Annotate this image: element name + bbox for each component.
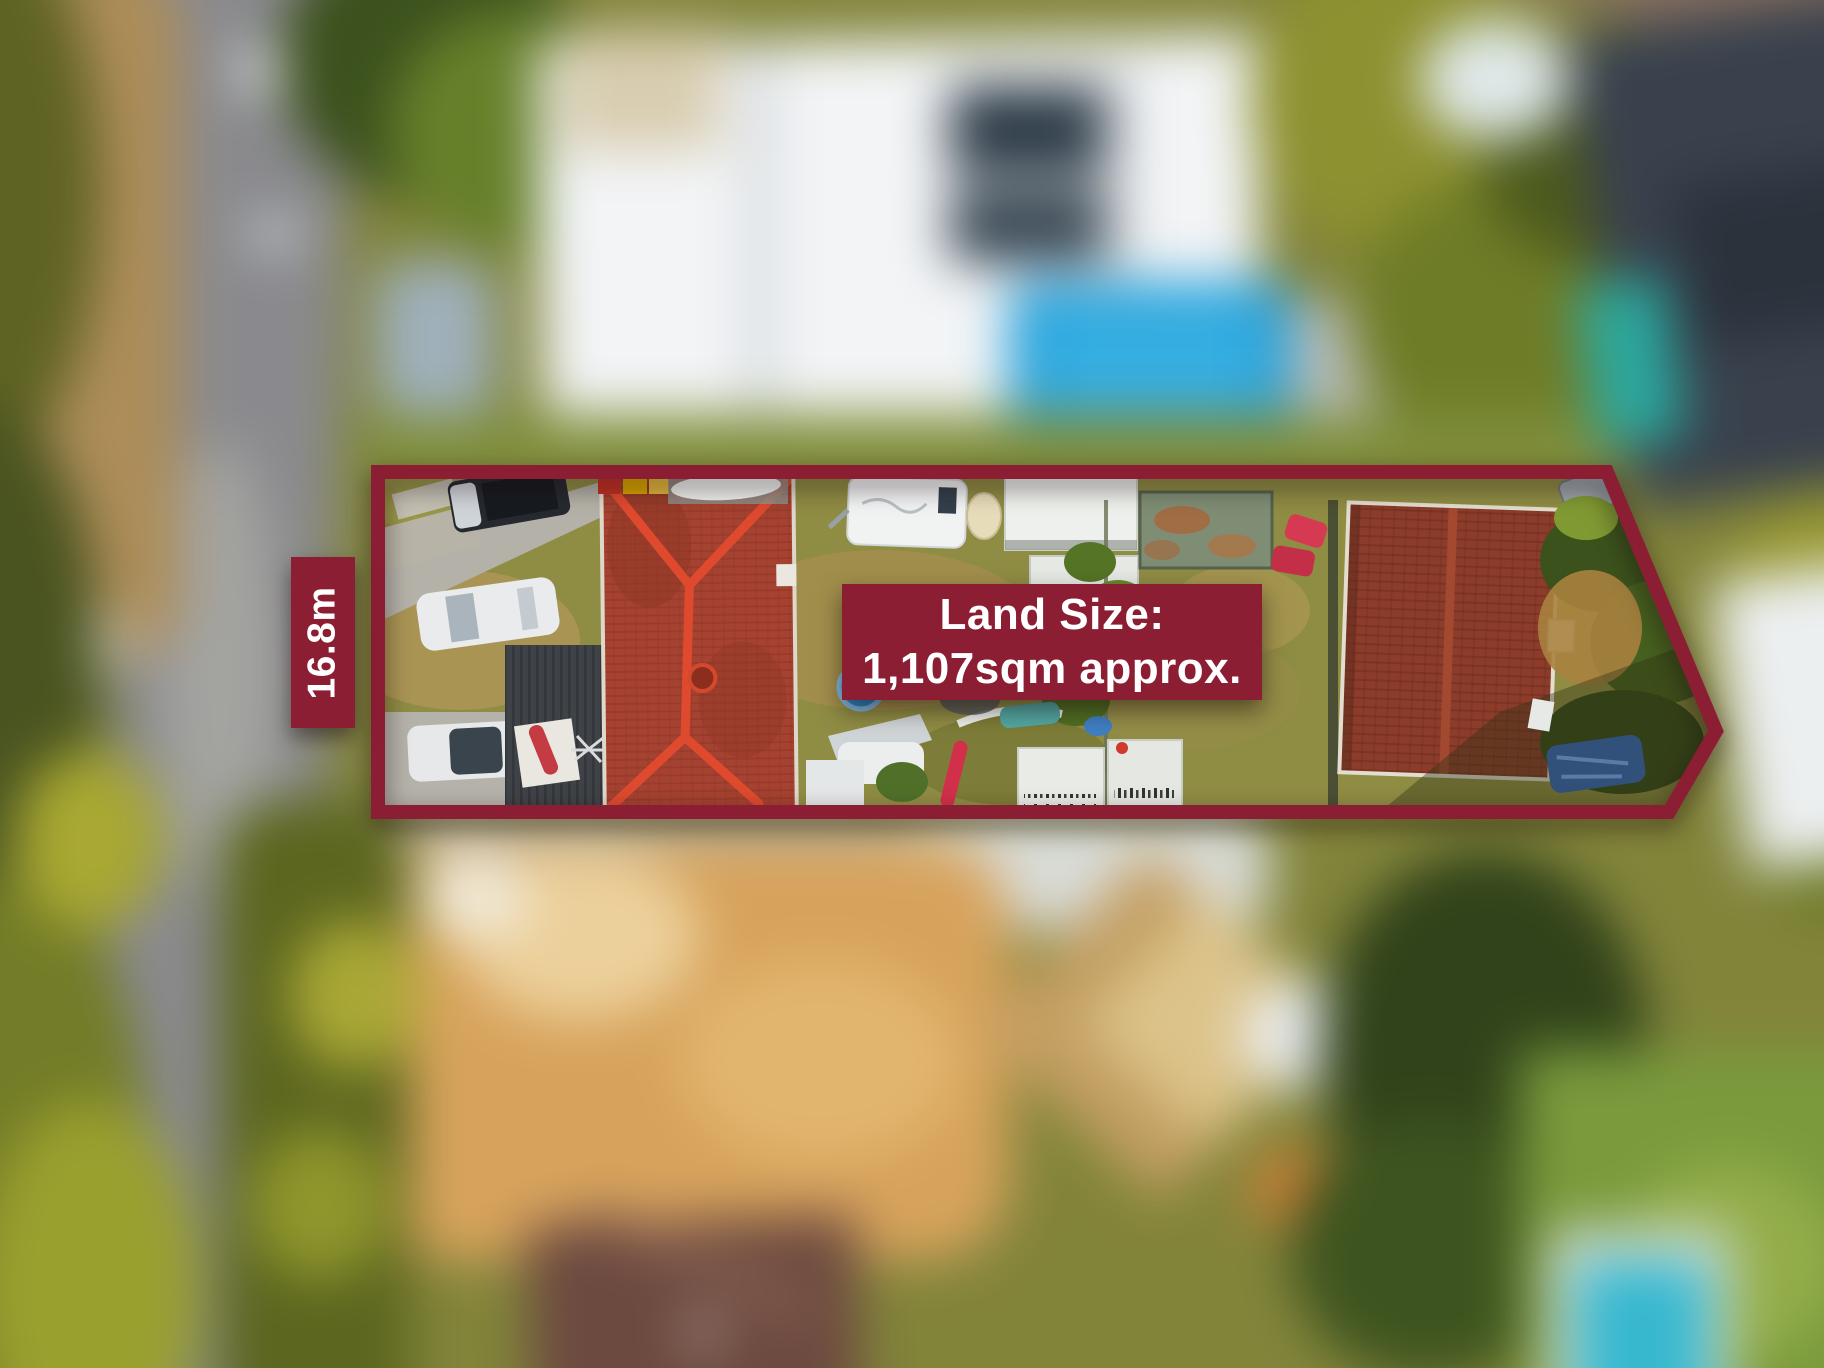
cream-tank [967, 493, 1001, 539]
bush [1064, 542, 1116, 582]
fence-line [1328, 500, 1338, 812]
white-shed-upper [1005, 478, 1137, 550]
white-trailer [806, 760, 864, 808]
frontage-text: 16.8m [301, 586, 345, 699]
blue-item [1084, 716, 1112, 736]
roof-box [776, 564, 796, 586]
main-house-roof [601, 475, 798, 811]
land-size-line1: Land Size: [939, 588, 1164, 642]
bush [1554, 496, 1618, 540]
rusty-trampoline-frame [1140, 492, 1272, 568]
aerial-property-photo: Land Size: 1,107sqm approx. 16.8m [0, 0, 1824, 1368]
caravan-hatch [938, 487, 957, 514]
shed-roof [1005, 478, 1137, 550]
rust-patch [1144, 540, 1180, 560]
red-ball [1116, 742, 1128, 754]
frontage-dimension-label: 16.8m [291, 557, 355, 728]
car-glass-roof [449, 726, 503, 775]
land-size-line2: 1,107sqm approx. [862, 642, 1242, 696]
chimney [689, 665, 715, 691]
caravan [829, 475, 967, 548]
shed-marks [1114, 788, 1174, 802]
rust-patch [1208, 534, 1256, 558]
land-size-label: Land Size: 1,107sqm approx. [842, 584, 1262, 700]
rust-patch [1154, 506, 1210, 534]
bush [876, 762, 928, 802]
